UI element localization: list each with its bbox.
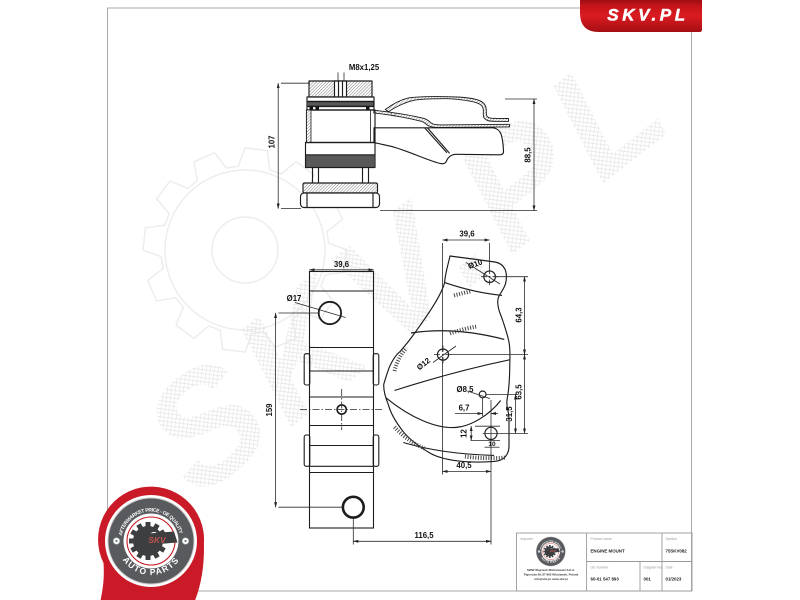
svg-text:Product name: Product name [591, 537, 612, 541]
svg-text:SKV.PL: SKV.PL [607, 6, 688, 25]
svg-text:ENGINE MOUNT: ENGINE MOUNT [591, 549, 625, 554]
svg-text:75SKV082: 75SKV082 [666, 549, 688, 554]
svg-text:159: 159 [265, 403, 274, 417]
svg-text:60-01 547 893: 60-01 547 893 [591, 577, 620, 582]
svg-text:63,5: 63,5 [515, 384, 524, 400]
svg-text:001: 001 [644, 577, 652, 582]
svg-text:OE Number: OE Number [591, 566, 610, 570]
svg-text:info@skv.pl, www.skv.pl: info@skv.pl, www.skv.pl [534, 577, 567, 581]
svg-text:6,7: 6,7 [459, 404, 470, 413]
svg-text:12: 12 [460, 429, 469, 438]
svg-text:Date: Date [666, 566, 673, 570]
svg-text:Diagram No.: Diagram No. [644, 566, 663, 570]
svg-text:107: 107 [268, 135, 277, 148]
svg-text:SKV.PL: SKV.PL [112, 9, 706, 527]
svg-text:88,5: 88,5 [524, 147, 533, 163]
svg-text:Ø8,5: Ø8,5 [457, 385, 475, 394]
svg-text:64,3: 64,3 [515, 307, 524, 323]
svg-text:40,5: 40,5 [456, 461, 472, 470]
svg-text:Symbol: Symbol [666, 537, 678, 541]
svg-text:39,6: 39,6 [459, 230, 475, 239]
svg-text:Ø17: Ø17 [287, 294, 302, 303]
svg-text:Importer: Importer [521, 537, 534, 541]
svg-text:Paprocka 69, 87-800 Wloclawek,: Paprocka 69, 87-800 Wloclawek, Poland [524, 572, 579, 576]
svg-text:39,6: 39,6 [334, 260, 350, 269]
svg-text:SWW Wojciech Michniewski S.K.A: SWW Wojciech Michniewski S.K.A. [527, 568, 575, 572]
svg-text:116,5: 116,5 [414, 531, 434, 540]
svg-text:10: 10 [488, 441, 496, 448]
svg-text:01/2023: 01/2023 [666, 577, 682, 582]
svg-text:31,5: 31,5 [505, 406, 514, 422]
svg-text:M8x1,25: M8x1,25 [349, 63, 380, 72]
